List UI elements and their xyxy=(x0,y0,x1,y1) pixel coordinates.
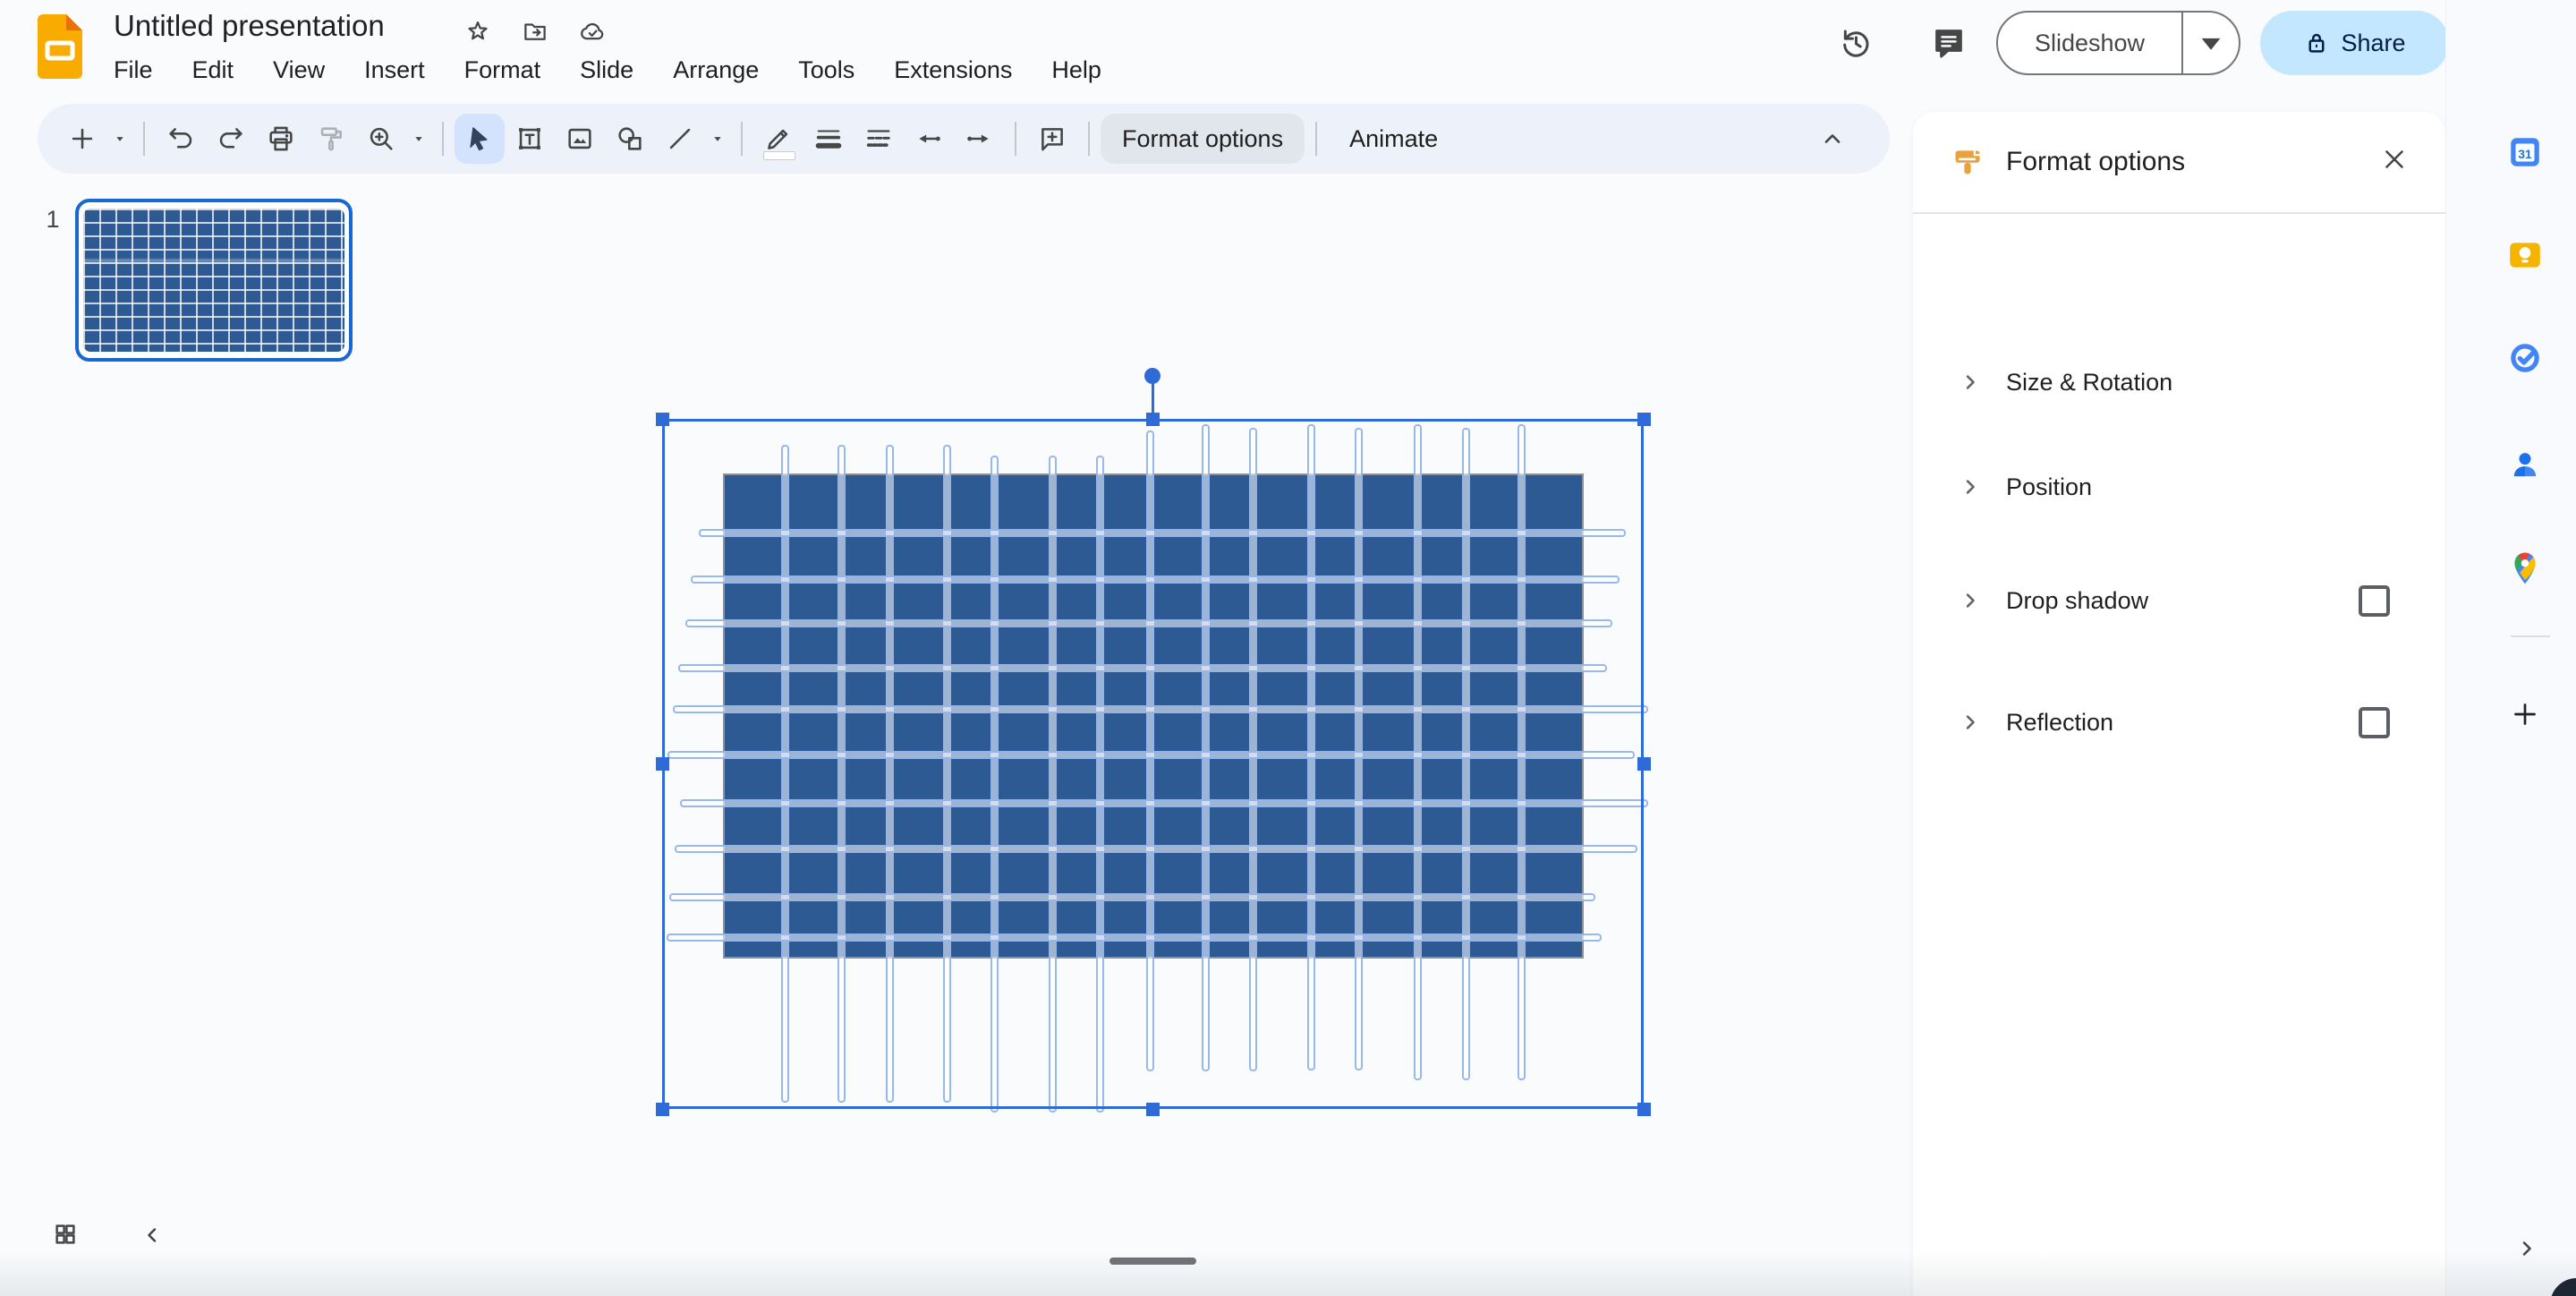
chevron-right-icon xyxy=(1958,370,1983,395)
format-options-panel: Format options Size & RotationPositionDr… xyxy=(1913,112,2445,1296)
shape-icon[interactable] xyxy=(605,114,655,164)
comments-icon[interactable] xyxy=(1931,25,1967,61)
redo-icon[interactable] xyxy=(206,114,256,164)
chevron-right-icon xyxy=(1958,710,1983,735)
horizontal-scrollbar-thumb[interactable] xyxy=(1109,1258,1196,1265)
calendar-icon[interactable]: 31 xyxy=(2506,133,2544,171)
menu-insert[interactable]: Insert xyxy=(361,55,429,86)
rotation-handle[interactable] xyxy=(1144,368,1160,384)
grid-view-icon[interactable] xyxy=(52,1221,79,1248)
resize-handle[interactable] xyxy=(1637,1103,1651,1116)
paintbrush-icon xyxy=(1951,145,1985,179)
line-icon[interactable] xyxy=(655,114,705,164)
menu-extensions[interactable]: Extensions xyxy=(890,55,1016,86)
toolbar: Format optionsAnimate xyxy=(38,104,1890,174)
menu-arrange[interactable]: Arrange xyxy=(669,55,762,86)
line-start-icon[interactable] xyxy=(904,114,954,164)
border-weight-icon[interactable] xyxy=(803,114,854,164)
section-checkbox[interactable] xyxy=(2359,707,2390,738)
hide-menus-chevron-up-icon[interactable] xyxy=(1807,124,1858,154)
side-app-bar xyxy=(2445,0,2576,1296)
slideshow-button[interactable]: Slideshow xyxy=(1996,11,2240,75)
share-label: Share xyxy=(2341,30,2405,57)
menu-file[interactable]: File xyxy=(110,55,157,86)
cloud-check-icon xyxy=(579,18,606,45)
slideshow-caret-icon[interactable] xyxy=(2183,15,2239,71)
toolbar-divider xyxy=(1315,122,1317,156)
chevron-right-icon xyxy=(1958,588,1983,613)
toolbar-divider xyxy=(1015,122,1016,156)
caret-down-icon[interactable] xyxy=(406,114,431,164)
panel-section-reflection[interactable]: Reflection xyxy=(1913,669,2445,776)
menubar: FileEditViewInsertFormatSlideArrangeTool… xyxy=(110,52,1105,88)
resize-handle[interactable] xyxy=(656,413,669,426)
paint-roller-icon[interactable] xyxy=(306,114,356,164)
border-color-icon[interactable] xyxy=(753,114,803,164)
zoom-icon[interactable] xyxy=(356,114,406,164)
toolbar-divider xyxy=(1088,122,1090,156)
slides-logo-icon[interactable] xyxy=(38,14,82,79)
section-checkbox[interactable] xyxy=(2359,585,2390,617)
format-options-button[interactable]: Format options xyxy=(1101,114,1305,164)
toolbar-divider xyxy=(143,122,145,156)
resize-handle[interactable] xyxy=(656,757,669,771)
undo-icon[interactable] xyxy=(156,114,206,164)
caret-down-icon[interactable] xyxy=(705,114,730,164)
menu-format[interactable]: Format xyxy=(461,55,545,86)
history-icon[interactable] xyxy=(1838,25,1874,61)
resize-handle[interactable] xyxy=(1146,413,1160,426)
panel-section-drop-shadow[interactable]: Drop shadow xyxy=(1913,547,2445,654)
animate-button[interactable]: Animate xyxy=(1328,114,1459,164)
plus-icon[interactable] xyxy=(57,114,107,164)
menu-slide[interactable]: Slide xyxy=(576,55,637,86)
selection-bounding-box[interactable] xyxy=(662,419,1644,1109)
section-label: Position xyxy=(2006,473,2092,501)
menu-help[interactable]: Help xyxy=(1048,55,1105,86)
section-label: Reflection xyxy=(2006,709,2113,737)
slide-thumbnail[interactable] xyxy=(75,199,353,362)
line-end-icon[interactable] xyxy=(954,114,1004,164)
add-comment-icon[interactable] xyxy=(1027,114,1077,164)
border-color-swatch xyxy=(763,151,795,160)
section-label: Size & Rotation xyxy=(2006,369,2172,396)
border-dash-icon[interactable] xyxy=(854,114,904,164)
panel-header: Format options xyxy=(1913,112,2445,212)
slide-thumbnail-preview xyxy=(83,209,344,352)
print-icon[interactable] xyxy=(256,114,306,164)
toolbar-divider xyxy=(442,122,444,156)
panel-header-divider xyxy=(1913,212,2445,214)
panel-section-size-rotation[interactable]: Size & Rotation xyxy=(1913,328,2445,436)
resize-handle[interactable] xyxy=(1637,757,1651,771)
menu-tools[interactable]: Tools xyxy=(795,55,858,86)
close-icon[interactable] xyxy=(2379,144,2410,175)
tasks-icon[interactable] xyxy=(2506,339,2544,377)
resize-handle[interactable] xyxy=(1146,1103,1160,1116)
menu-view[interactable]: View xyxy=(269,55,328,86)
panel-section-position[interactable]: Position xyxy=(1913,433,2445,541)
slideshow-label: Slideshow xyxy=(1998,30,2181,57)
menu-edit[interactable]: Edit xyxy=(189,55,238,86)
slide-number: 1 xyxy=(39,206,66,234)
toolbar-divider xyxy=(741,122,743,156)
google-slides-app: Untitled presentation FileEditViewInsert… xyxy=(0,0,2576,1296)
resize-handle[interactable] xyxy=(1637,413,1651,426)
cursor-icon[interactable] xyxy=(455,114,505,164)
sidebar-divider xyxy=(2511,635,2550,637)
expand-chevron-right-icon[interactable] xyxy=(2514,1236,2539,1261)
resize-handle[interactable] xyxy=(656,1103,669,1116)
chevron-right-icon xyxy=(1958,474,1983,499)
share-button[interactable]: Share xyxy=(2260,11,2449,75)
collapse-filmstrip-chevron-left-icon[interactable] xyxy=(140,1223,165,1248)
document-title[interactable]: Untitled presentation xyxy=(114,9,385,43)
contacts-icon[interactable] xyxy=(2506,447,2544,484)
keep-icon[interactable] xyxy=(2506,236,2544,274)
star-icon[interactable] xyxy=(464,18,491,45)
folder-move-icon[interactable] xyxy=(522,18,548,45)
get-addons-plus-icon[interactable] xyxy=(2509,698,2541,730)
svg-text:31: 31 xyxy=(2518,148,2532,161)
maps-icon[interactable] xyxy=(2506,550,2544,587)
caret-down-icon[interactable] xyxy=(107,114,132,164)
section-label: Drop shadow xyxy=(2006,587,2148,615)
panel-title: Format options xyxy=(2006,147,2185,177)
lock-icon xyxy=(2303,30,2330,56)
text-box-icon[interactable] xyxy=(505,114,555,164)
image-icon[interactable] xyxy=(555,114,605,164)
